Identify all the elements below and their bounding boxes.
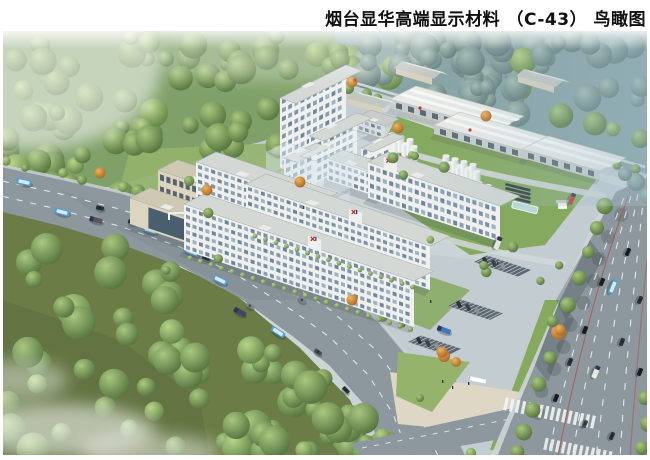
scene-root <box>3 31 647 455</box>
page-title: 烟台显华高端显示材料 （C-43） 鸟瞰图 <box>325 5 646 30</box>
aerial-rendering <box>3 31 647 455</box>
page: 烟台显华高端显示材料 （C-43） 鸟瞰图 <box>0 0 650 460</box>
rendering-canvas <box>3 31 647 455</box>
